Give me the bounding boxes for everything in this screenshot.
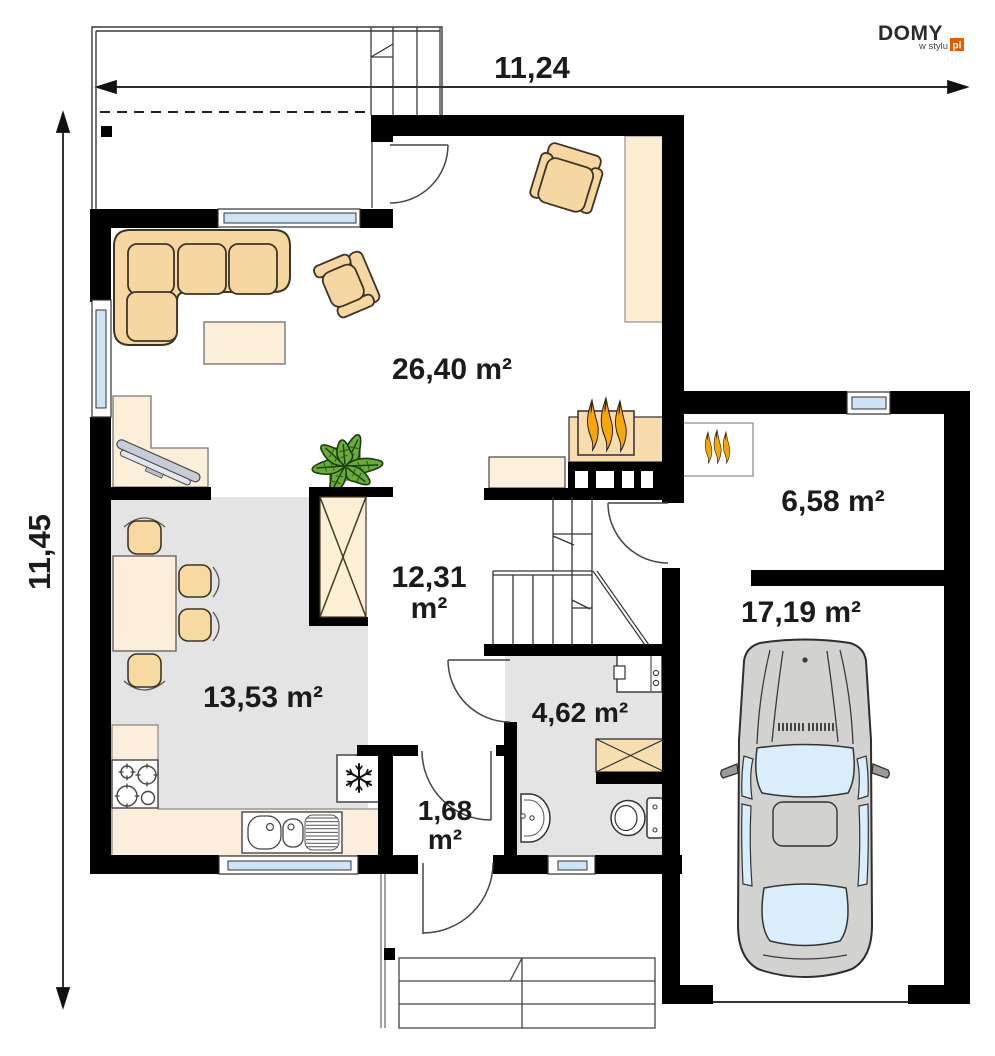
svg-text:6,58 m²: 6,58 m² [781, 485, 884, 518]
svg-text:13,53 m²: 13,53 m² [203, 681, 323, 714]
svg-text:pl: pl [953, 41, 962, 52]
svg-text:11,24: 11,24 [494, 50, 571, 85]
svg-text:m²: m² [411, 592, 448, 625]
svg-text:w stylu: w stylu [918, 41, 948, 52]
svg-text:4,62 m²: 4,62 m² [532, 697, 629, 728]
svg-text:17,19 m²: 17,19 m² [741, 596, 861, 629]
svg-text:26,40 m²: 26,40 m² [392, 353, 512, 386]
svg-text:12,31: 12,31 [391, 561, 466, 594]
svg-text:1,68: 1,68 [418, 795, 473, 826]
svg-text:11,45: 11,45 [22, 514, 57, 590]
svg-text:m²: m² [428, 824, 462, 855]
